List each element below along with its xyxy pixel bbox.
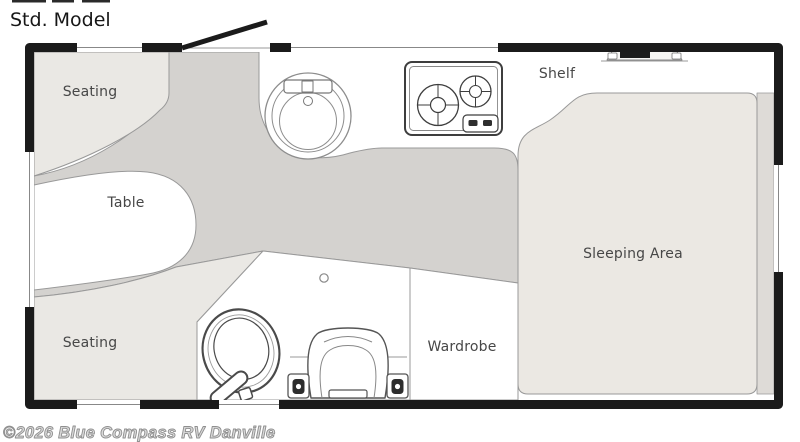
- window-bottom-mid: [219, 400, 279, 409]
- floorplan-page: Std. Model: [0, 0, 800, 442]
- watermark: ©2026 Blue Compass RV Danville: [3, 424, 275, 442]
- label-wardrobe: Wardrobe: [427, 339, 496, 355]
- ceiling-light-icon: [320, 274, 328, 282]
- label-seating-top: Seating: [63, 84, 118, 100]
- window-top-kitchen: [291, 43, 498, 52]
- speaker-box-left: [288, 374, 309, 398]
- cropped-text-fragment: [12, 0, 110, 3]
- floorplan-svg: Std. Model: [0, 0, 800, 442]
- bed-side-ledge: [757, 93, 774, 394]
- sleeping-area-mattress: [518, 93, 757, 394]
- cooktop-icon: [405, 62, 502, 135]
- window-right: [774, 165, 783, 272]
- label-shelf: Shelf: [539, 66, 576, 82]
- label-seating-bottom: Seating: [63, 335, 118, 351]
- kitchen-sink-icon: [265, 73, 351, 159]
- label-table: Table: [106, 195, 144, 211]
- window-top-left: [77, 43, 142, 52]
- wardrobe-area: [410, 268, 518, 400]
- speaker-box-right: [387, 374, 408, 398]
- window-left: [25, 152, 34, 307]
- page-title: Std. Model: [10, 9, 111, 31]
- window-bottom-left: [77, 400, 140, 409]
- label-sleeping-area: Sleeping Area: [583, 246, 683, 262]
